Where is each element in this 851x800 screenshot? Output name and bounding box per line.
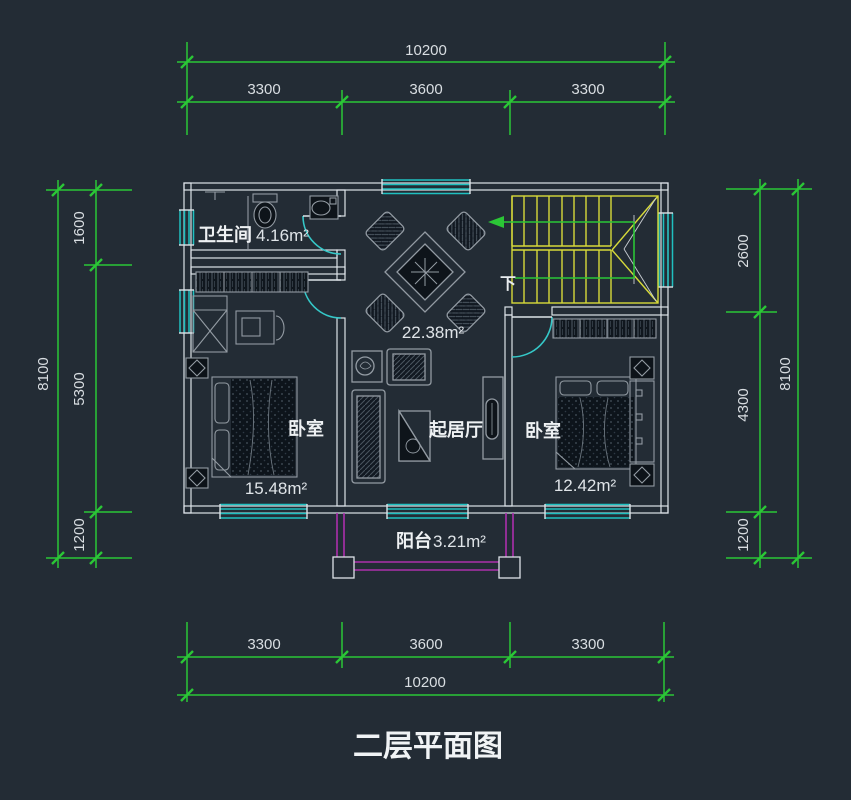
dim-bottom-seg-2: 3600 xyxy=(409,636,442,653)
dim-right-seg-1: 2600 xyxy=(735,234,752,267)
dim-right-total: 8100 xyxy=(777,357,794,390)
dimension-ticks xyxy=(52,56,804,701)
dining-chair xyxy=(364,210,405,251)
stairs-winder-lines xyxy=(624,198,656,301)
living-area: 22.38m² xyxy=(402,323,465,342)
dim-left-seg-3: 1200 xyxy=(71,518,88,551)
bathroom-label: 卫生间 xyxy=(198,224,252,245)
dim-left-seg-1: 1600 xyxy=(71,211,88,244)
dim-bottom-seg-3: 3300 xyxy=(571,636,604,653)
dining-chair xyxy=(364,292,405,333)
dim-top-seg-1: 3300 xyxy=(247,81,280,98)
bedroom-right-area: 12.42m² xyxy=(554,476,617,495)
stairs-down-label: 下 xyxy=(500,276,516,293)
dim-top-seg-2: 3600 xyxy=(409,81,442,98)
bedroom-right-furniture xyxy=(553,319,656,486)
dim-left-total: 8100 xyxy=(35,357,52,390)
dim-left-seg-2: 5300 xyxy=(71,372,88,405)
dining-chair xyxy=(445,210,486,251)
bedroom-left-furniture xyxy=(186,272,308,488)
balcony-column xyxy=(333,557,354,578)
bedroom-left-label: 卧室 xyxy=(288,418,324,439)
dim-bottom-seg-1: 3300 xyxy=(247,636,280,653)
bedroom-right-label: 卧室 xyxy=(525,420,561,441)
dim-right-seg-3: 1200 xyxy=(735,518,752,551)
drawing-title: 二层平面图 xyxy=(353,729,503,764)
dim-right-seg-2: 4300 xyxy=(735,388,752,421)
dim-bottom-total: 10200 xyxy=(404,674,446,691)
floor-plan-svg: 10200 3300 3600 3300 3300 3600 3300 1020… xyxy=(0,0,851,800)
stairs-down-arrow-icon xyxy=(488,216,504,228)
dim-top-seg-3: 3300 xyxy=(571,81,604,98)
living-label: 起居厅 xyxy=(428,419,483,440)
balcony: 阳台 3.21m² xyxy=(333,513,520,578)
balcony-area: 3.21m² xyxy=(433,532,486,551)
living-furniture xyxy=(352,210,503,483)
balcony-label: 阳台 xyxy=(396,530,432,551)
stairs-direction-path: 下 xyxy=(488,216,634,293)
bedroom-left-area: 15.48m² xyxy=(245,479,308,498)
bathroom-area: 4.16m² xyxy=(256,226,309,245)
dimension-lines xyxy=(46,42,812,702)
stairs xyxy=(512,196,658,303)
balcony-column xyxy=(499,557,520,578)
dim-top-total: 10200 xyxy=(405,42,447,59)
cad-floor-plan-canvas: 10200 3300 3600 3300 3300 3600 3300 1020… xyxy=(0,0,851,800)
